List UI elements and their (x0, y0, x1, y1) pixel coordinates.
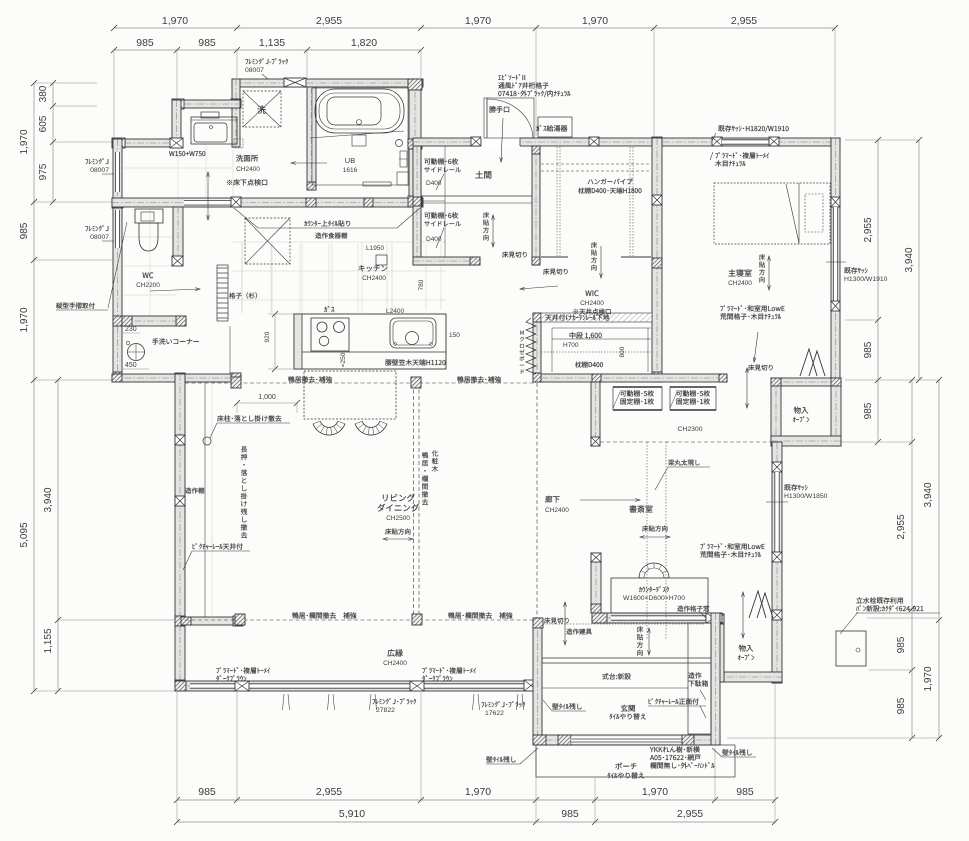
svg-text:985: 985 (896, 636, 907, 653)
svg-text:230: 230 (125, 326, 137, 333)
svg-text:3,940: 3,940 (43, 487, 54, 512)
svg-text:CH2400: CH2400 (545, 507, 569, 514)
svg-text:2,955: 2,955 (731, 15, 757, 27)
svg-text:17622: 17622 (485, 710, 504, 717)
svg-text:2,955: 2,955 (863, 217, 874, 242)
svg-text:150: 150 (449, 332, 460, 339)
svg-text:H1300/W1910: H1300/W1910 (844, 276, 888, 283)
svg-text:380: 380 (38, 85, 49, 102)
svg-text:1,970: 1,970 (19, 307, 30, 332)
svg-text:2,955: 2,955 (677, 808, 703, 820)
svg-text:5,095: 5,095 (19, 522, 30, 547)
svg-text:450: 450 (125, 362, 137, 369)
svg-text:985: 985 (863, 402, 874, 419)
svg-text:1,820: 1,820 (351, 37, 377, 49)
svg-text:985: 985 (736, 786, 754, 798)
svg-text:L1950: L1950 (366, 245, 384, 252)
svg-text:CH2400: CH2400 (236, 166, 260, 173)
svg-text:H1300/W1850: H1300/W1850 (784, 493, 828, 500)
svg-text:800: 800 (619, 346, 626, 357)
svg-text:1,000: 1,000 (258, 394, 276, 401)
svg-text:2,955: 2,955 (316, 15, 342, 27)
svg-text:985: 985 (863, 341, 874, 358)
svg-text:985: 985 (136, 37, 154, 49)
svg-text:27822: 27822 (376, 707, 395, 714)
svg-text:2,955: 2,955 (896, 514, 907, 539)
svg-text:H700: H700 (563, 342, 579, 349)
svg-text:CH2400: CH2400 (383, 660, 407, 667)
svg-text:2,955: 2,955 (316, 786, 342, 798)
svg-text:1,135: 1,135 (259, 37, 285, 49)
svg-text:CH2500: CH2500 (386, 515, 410, 522)
svg-text:1,970: 1,970 (923, 666, 934, 691)
svg-text:985: 985 (198, 786, 216, 798)
svg-text:985: 985 (198, 37, 216, 49)
svg-text:920: 920 (264, 331, 271, 342)
svg-text:UB: UB (345, 156, 355, 165)
svg-text:985: 985 (896, 697, 907, 714)
svg-text:5,910: 5,910 (339, 808, 365, 820)
svg-text:CH2400: CH2400 (728, 280, 752, 287)
svg-text:1,970: 1,970 (465, 786, 491, 798)
svg-text:CH2400: CH2400 (580, 300, 604, 307)
svg-text:L2400: L2400 (386, 308, 404, 315)
svg-text:1,970: 1,970 (582, 15, 608, 27)
svg-text:1616: 1616 (343, 167, 358, 174)
svg-text:CH2300: CH2300 (678, 426, 703, 433)
svg-text:1,970: 1,970 (465, 15, 491, 27)
svg-text:1,970: 1,970 (642, 786, 668, 798)
svg-text:CH2400: CH2400 (362, 275, 386, 282)
svg-text:08007: 08007 (245, 67, 264, 74)
svg-text:3,940: 3,940 (923, 482, 934, 507)
svg-text:3,940: 3,940 (904, 247, 915, 272)
svg-text:985: 985 (561, 808, 579, 820)
svg-text:1,970: 1,970 (19, 129, 30, 154)
svg-text:W1600×D600×H700: W1600×D600×H700 (623, 595, 685, 602)
svg-text:=250: =250 (340, 352, 347, 367)
svg-text:780: 780 (418, 279, 425, 290)
svg-text:08007: 08007 (90, 167, 109, 174)
svg-text:1,970: 1,970 (162, 15, 188, 27)
svg-text:08007: 08007 (90, 234, 109, 241)
svg-text:605: 605 (38, 115, 49, 132)
svg-text:1,155: 1,155 (43, 628, 54, 653)
svg-text:985: 985 (19, 222, 30, 239)
svg-text:975: 975 (38, 163, 49, 180)
svg-text:CH2200: CH2200 (136, 282, 160, 289)
